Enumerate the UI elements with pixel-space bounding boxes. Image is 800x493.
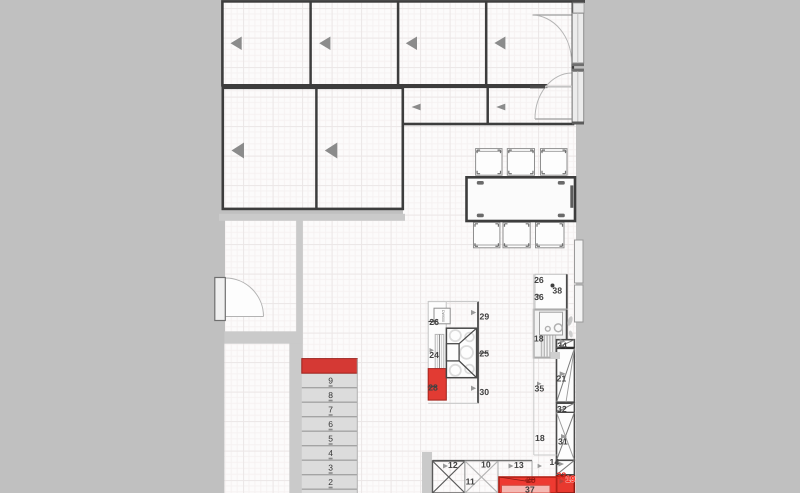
svg-text:3: 3 (328, 463, 333, 473)
svg-text:18: 18 (535, 433, 545, 443)
svg-text:28: 28 (428, 383, 438, 393)
svg-text:9: 9 (328, 376, 333, 386)
svg-text:31: 31 (558, 437, 568, 447)
svg-text:37: 37 (525, 484, 535, 493)
svg-text:35: 35 (535, 384, 545, 394)
svg-text:26: 26 (534, 275, 544, 285)
svg-text:12: 12 (448, 460, 458, 470)
svg-text:6: 6 (328, 419, 333, 429)
svg-text:14: 14 (550, 457, 560, 467)
svg-text:8: 8 (328, 390, 333, 400)
svg-text:36: 36 (534, 292, 544, 302)
svg-text:34: 34 (557, 341, 567, 351)
svg-text:18: 18 (534, 334, 544, 344)
svg-text:10: 10 (481, 460, 491, 470)
svg-text:5: 5 (328, 434, 333, 444)
svg-text:19: 19 (566, 474, 576, 484)
svg-text:21: 21 (557, 373, 567, 383)
svg-text:32: 32 (557, 404, 567, 414)
svg-text:2: 2 (328, 477, 333, 487)
svg-text:29: 29 (480, 312, 490, 322)
svg-text:DW600: DW600 (441, 310, 445, 322)
svg-text:11: 11 (466, 477, 475, 487)
svg-text:38: 38 (552, 286, 562, 296)
svg-text:7: 7 (328, 405, 333, 415)
svg-text:24: 24 (429, 350, 439, 360)
svg-text:13: 13 (514, 460, 524, 470)
svg-text:4: 4 (328, 448, 333, 458)
svg-text:30: 30 (479, 387, 489, 397)
